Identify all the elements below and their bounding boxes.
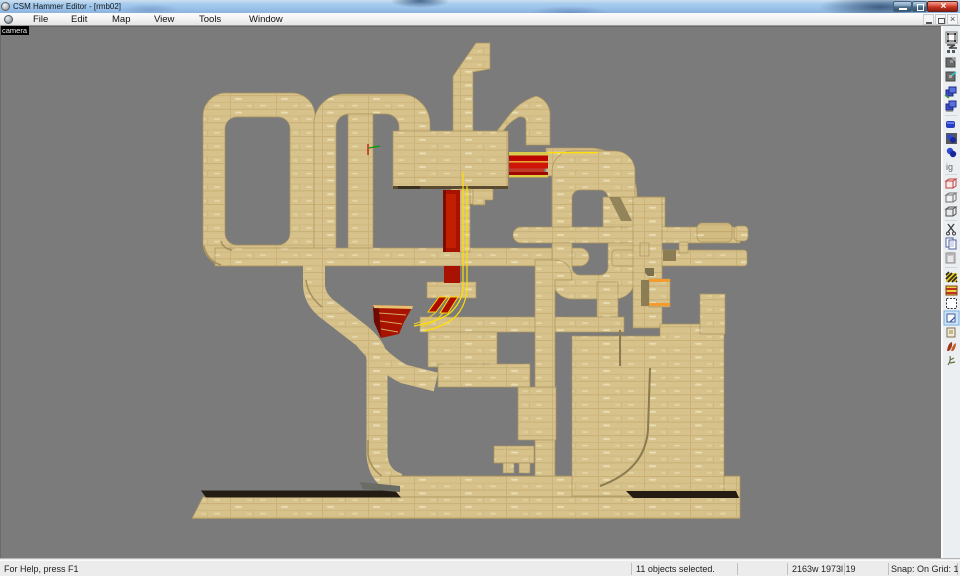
svg-text:ig: ig [946,162,953,172]
